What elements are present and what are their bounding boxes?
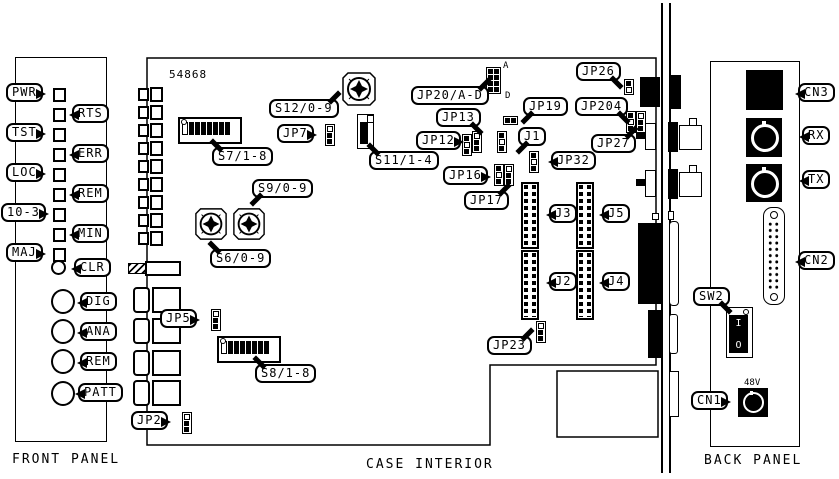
edge-jack <box>133 350 150 376</box>
j4-header[interactable] <box>576 250 594 320</box>
sw2-indicator-dot <box>743 309 749 315</box>
callout-s12: S12/0-9 <box>269 99 339 118</box>
rx-connector[interactable] <box>746 118 782 157</box>
back-panel-title: BACK PANEL <box>704 453 802 468</box>
callout-dig: DIG <box>80 292 117 311</box>
callout-rx: RX <box>802 126 830 145</box>
cn2-bracket-shell <box>669 221 679 306</box>
callout-jp17: JP17 <box>464 191 509 210</box>
callout-j1: J1 <box>518 127 546 146</box>
board-number: 54868 <box>169 68 207 81</box>
edge-pin <box>138 142 149 155</box>
cn3-board-connector <box>640 77 660 107</box>
tx-bnc-barrel <box>679 172 702 197</box>
jp5-jumper[interactable] <box>211 309 221 331</box>
rx-bnc-barrel <box>679 125 702 150</box>
edge-pin <box>150 231 163 246</box>
cn1-connector[interactable] <box>738 388 768 417</box>
callout-jp26: JP26 <box>576 62 621 81</box>
j3-header[interactable] <box>521 182 539 249</box>
s9-rotary-switch[interactable] <box>232 207 266 245</box>
callout-jp20: JP20/A-D <box>411 86 489 105</box>
edge-pin <box>150 141 163 156</box>
callout-s11: S11/1-4 <box>369 151 439 170</box>
bracket-screw <box>668 211 674 220</box>
s6-rotary-switch[interactable] <box>194 207 228 245</box>
jp20-pin-a-label: A <box>503 61 508 71</box>
callout-tst: TST <box>6 123 43 142</box>
s8-dip-switch[interactable] <box>217 336 281 363</box>
lower-bracket-plate <box>669 371 679 417</box>
rx-bnc-base <box>668 122 678 152</box>
edge-tab-hatched <box>128 263 146 274</box>
rx-flange <box>645 123 656 150</box>
edge-pin <box>138 196 149 209</box>
callout-ana: ANA <box>80 322 117 341</box>
rx-bnc-lug <box>689 118 697 126</box>
edge-jack <box>133 318 150 344</box>
clr-button[interactable] <box>51 260 66 275</box>
cn2-board-connector <box>638 223 661 304</box>
jp19-jumper[interactable] <box>503 116 518 125</box>
cn2-connector[interactable] <box>763 207 785 305</box>
callout-jp19: JP19 <box>523 97 568 116</box>
edge-jack <box>133 380 150 406</box>
callout-cn3: CN3 <box>798 83 835 102</box>
dip-index-dot <box>181 119 187 125</box>
callout-maj: MAJ <box>6 243 43 262</box>
callout-jp32: JP32 <box>551 151 596 170</box>
edge-pin <box>138 106 149 119</box>
pwr-led <box>53 88 66 102</box>
callout-jp27: JP27 <box>591 134 636 153</box>
jp26-jumper[interactable] <box>624 79 634 95</box>
edge-pin <box>150 87 163 102</box>
cn2-screw-bottom <box>770 293 778 301</box>
tx-bnc-ring <box>751 170 779 198</box>
callout-clr: CLR <box>74 258 111 277</box>
edge-tab <box>145 261 181 276</box>
jp20-pin-d-label: D <box>505 91 510 101</box>
sw2-switch[interactable]: I O <box>726 307 753 358</box>
callout-rts: RTS <box>72 104 109 123</box>
callout-s9: S9/0-9 <box>252 179 313 198</box>
cn2-pins <box>767 221 780 291</box>
psu-module-outline <box>557 371 658 437</box>
cn1-voltage-label: 48V <box>744 378 760 388</box>
jp23-jumper[interactable] <box>536 321 546 343</box>
callout-j3: J3 <box>549 204 577 223</box>
cn1-ring <box>743 392 764 413</box>
edge-pin <box>138 232 149 245</box>
callout-jp13: JP13 <box>436 108 481 127</box>
edge-pin <box>150 177 163 192</box>
callout-min: MIN <box>72 224 109 243</box>
j5-header[interactable] <box>576 182 594 249</box>
callout-jp2: JP2 <box>131 411 168 430</box>
sw2-on-label: I <box>729 318 748 329</box>
callout-loc: LOC <box>6 163 43 182</box>
edge-pin <box>150 123 163 138</box>
callout-j4: J4 <box>602 272 630 291</box>
jp32-jumper[interactable] <box>529 151 539 173</box>
sw2-off-label: O <box>729 340 748 351</box>
jp7-jumper[interactable] <box>325 124 335 146</box>
edge-pin <box>150 213 163 228</box>
tst-led <box>53 128 66 142</box>
callout-jp12: JP12 <box>416 131 461 150</box>
callout-s8: S8/1-8 <box>255 364 316 383</box>
callout-s6: S6/0-9 <box>210 249 271 268</box>
lower-board-connector <box>648 310 661 358</box>
panel-layout-diagram: PWR RTS TST ERR LOC REM 10-3 MIN MAJ CLR… <box>0 0 839 479</box>
callout-jp204: JP204 <box>575 97 628 116</box>
front-panel-title: FRONT PANEL <box>12 452 120 467</box>
edge-block <box>152 350 181 376</box>
loc-led <box>53 168 66 182</box>
edge-pin <box>138 178 149 191</box>
tx-bnc-lug <box>689 165 697 173</box>
case-interior-title: CASE INTERIOR <box>366 457 494 472</box>
callout-10-3: 10-3 <box>1 203 46 222</box>
j1-jumper[interactable] <box>497 131 507 153</box>
edge-pin <box>138 214 149 227</box>
lower-bracket-tab <box>669 314 678 354</box>
jp2-jumper[interactable] <box>182 412 192 434</box>
cn3-bracket-connector <box>670 75 681 109</box>
10-3-led <box>53 208 66 222</box>
edge-pin <box>138 124 149 137</box>
callout-tx: TX <box>802 170 830 189</box>
bracket-screw <box>652 213 659 220</box>
cn2-screw-top <box>770 211 778 219</box>
callout-cn2: CN2 <box>798 251 835 270</box>
rx-bnc-ring <box>751 124 779 152</box>
callout-s7: S7/1-8 <box>212 147 273 166</box>
cn3-connector[interactable] <box>746 70 783 110</box>
callout-rem: REM <box>72 184 109 203</box>
callout-jp23: JP23 <box>487 336 532 355</box>
callout-err: ERR <box>72 144 109 163</box>
edge-block <box>152 380 181 406</box>
edge-pin <box>138 160 149 173</box>
j2-header[interactable] <box>521 250 539 320</box>
callout-j2: J2 <box>549 272 577 291</box>
callout-jp5: JP5 <box>160 309 197 328</box>
edge-jack <box>133 287 150 313</box>
callout-j5: J5 <box>602 204 630 223</box>
edge-pin <box>150 195 163 210</box>
s12-rotary-switch[interactable] <box>341 71 377 111</box>
tx-bnc-base <box>668 169 678 199</box>
tx-flange <box>645 170 656 197</box>
callout-sw2: SW2 <box>693 287 730 306</box>
edge-pin <box>138 88 149 101</box>
edge-pin <box>150 159 163 174</box>
callout-patt: PATT <box>78 383 123 402</box>
dip-index-dot <box>220 338 226 344</box>
tx-connector[interactable] <box>746 164 782 202</box>
edge-pin <box>150 105 163 120</box>
callout-jp16: JP16 <box>443 166 488 185</box>
callout-cn1: CN1 <box>691 391 728 410</box>
callout-jp7: JP7 <box>277 124 314 143</box>
callout-rem-jack: REM <box>80 352 117 371</box>
callout-pwr: PWR <box>6 83 43 102</box>
